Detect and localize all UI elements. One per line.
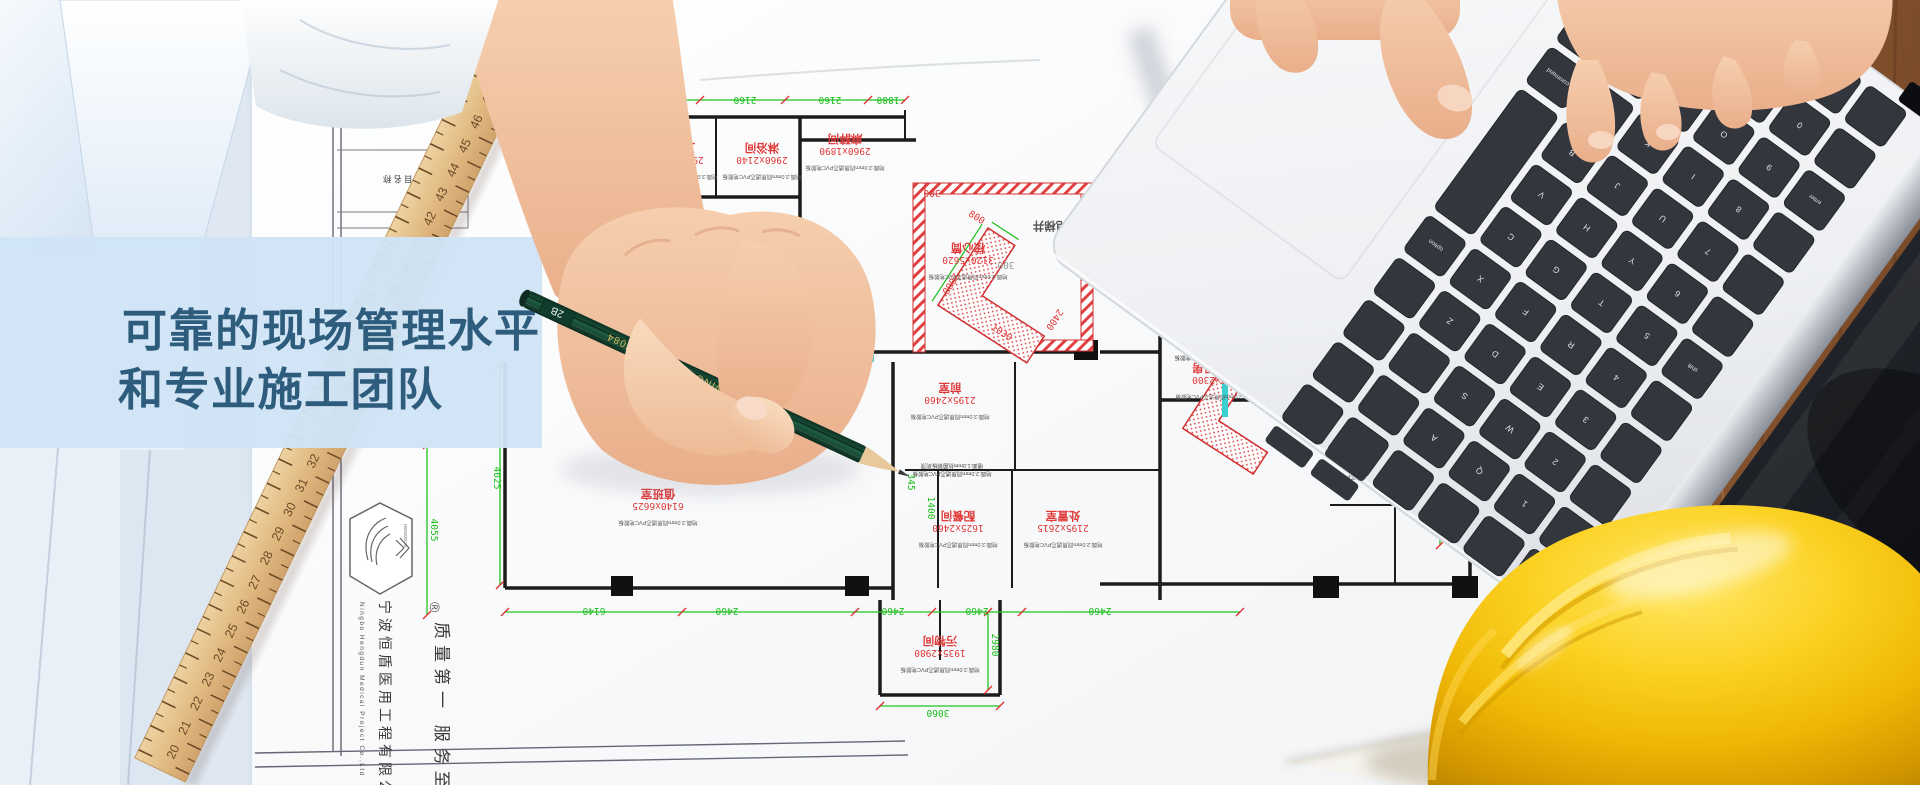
dim-label: 6140 bbox=[582, 605, 605, 616]
room-size-label: 2195x2615 bbox=[1037, 522, 1088, 533]
room-label: 麻醉间 bbox=[828, 132, 864, 146]
room-label: 前室 bbox=[938, 381, 961, 395]
company-name-en: Ningbo Hengdun Medical Project Co.,Ltd bbox=[358, 602, 365, 777]
dim-label: 1400 bbox=[925, 497, 936, 520]
room-spec-note: 地面:2.0mm同质透芯PVC地胶板 bbox=[910, 413, 990, 421]
dim-label: 4025 bbox=[491, 467, 502, 490]
room-label: 淋浴间 bbox=[745, 141, 780, 155]
spec-note: 墙面:1.0mm抗菌钢板到顶 bbox=[920, 462, 983, 470]
room-size-label: 2195x2460 bbox=[924, 394, 976, 405]
dim-label: 2460 bbox=[715, 605, 738, 616]
dim-label: 2160 bbox=[733, 94, 756, 105]
company-name-cn: 宁波恒盾医用工程有限公司 bbox=[377, 600, 393, 785]
dim-label: 3060 bbox=[926, 707, 949, 718]
headline-line1: 可靠的现场管理水平 bbox=[122, 305, 541, 356]
room-label: 处置室 bbox=[1045, 509, 1081, 523]
room-label: 核心筒 bbox=[950, 241, 985, 255]
room-spec-note: 地面:2.0mm同质透芯PVC地胶板 bbox=[900, 666, 980, 674]
dim-label: 2460 bbox=[1088, 605, 1111, 616]
room-spec-note: 地面:2.0mm同质透芯PVC地胶板 bbox=[928, 273, 1008, 281]
stamp-slogan: 质量第一 服务至上 bbox=[432, 622, 451, 785]
headline-overlay: 可靠的现场管理水平 和专业施工团队 bbox=[0, 237, 542, 448]
dim-label: 300 bbox=[923, 187, 940, 198]
dim-label: 1880 bbox=[876, 94, 899, 105]
room-spec-note: 地面:2.0mm同质透芯PVC地胶板 bbox=[918, 541, 998, 549]
dim-label: 2460 bbox=[965, 605, 988, 616]
room-label: 配餐间 bbox=[941, 509, 976, 523]
room-size-label: 1625x2460 bbox=[932, 522, 984, 533]
registered-mark: ® bbox=[427, 602, 443, 613]
shirt-sleeve bbox=[240, 0, 500, 129]
hero-banner: 设计图 1:100 病房平面布局、装修布置图 图纸名称 项目名称 HENGDUN… bbox=[0, 0, 1920, 785]
logo-text: HENGDUN bbox=[403, 524, 408, 547]
dim-label: 2460 bbox=[881, 605, 904, 616]
dim-label: 2980 bbox=[989, 634, 1000, 657]
room-spec-note: 地面:2.0mm同质透芯PVC地胶板 bbox=[1023, 541, 1103, 549]
spec-note: 地面:2.0mm同质透芯PVC地胶板 bbox=[912, 470, 992, 478]
dim-label: 300 bbox=[997, 259, 1014, 270]
room-spec-note: 地面:2.0mm同质透芯PVC地胶板 bbox=[618, 519, 698, 527]
dim-label: 4055 bbox=[428, 519, 439, 542]
room-label: 污物间 bbox=[923, 634, 958, 648]
room-spec-note: 地面:2.0mm同质透芯PVC地胶板 bbox=[722, 173, 802, 181]
room-size-label: 1935x2980 bbox=[914, 647, 966, 658]
dim-label: 2160 bbox=[818, 94, 841, 105]
fingernail bbox=[1656, 124, 1680, 140]
room-size-label: 3120x5620 bbox=[942, 254, 994, 265]
room-size-label: 2960x1890 bbox=[819, 145, 871, 156]
room-spec-note: 地面:2.0mm同质透芯PVC地胶板 bbox=[805, 164, 885, 172]
fingernail bbox=[1588, 131, 1614, 149]
room-size-label: 2960x2140 bbox=[736, 154, 788, 165]
headline-line2: 和专业施工团队 bbox=[118, 364, 444, 415]
room-size-label: 6140x6625 bbox=[632, 500, 683, 511]
